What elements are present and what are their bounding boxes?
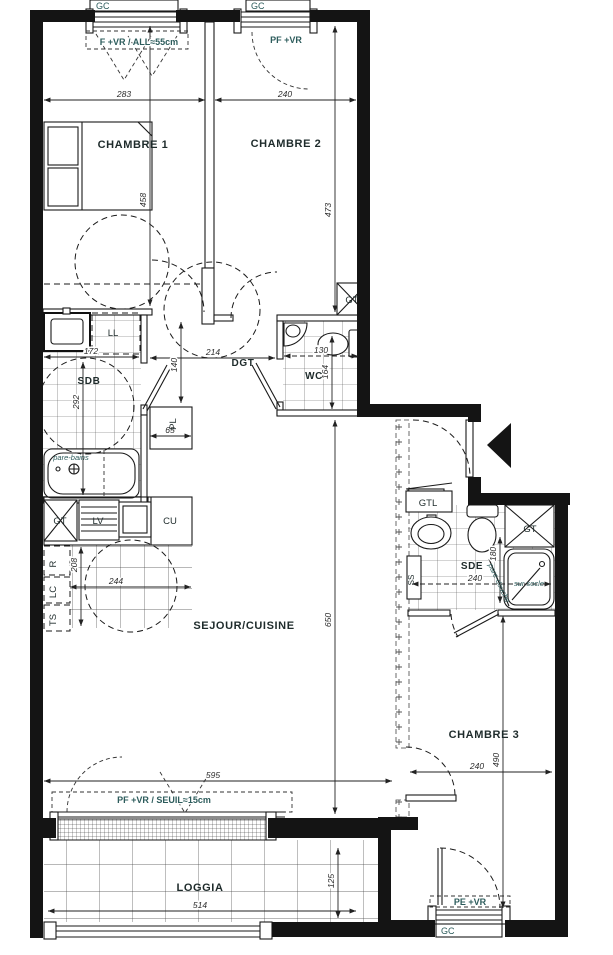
label-bay-window: PF +VR / SEUIL≈15cm: [117, 795, 211, 805]
label-ts: TS: [48, 614, 59, 626]
loggia-balustrade: [44, 922, 272, 939]
dim-dgt-height: 140: [169, 358, 179, 372]
dim-chambre2-width: 240: [277, 89, 292, 99]
dim-chambre3-width: 240: [469, 761, 484, 771]
label-chambre3: CHAMBRE 3: [449, 729, 520, 741]
dim-sdb-width: 172: [84, 346, 98, 356]
dim-kitchen-height: 208: [69, 558, 79, 573]
floor-plan-drawing: 283 240 458 473 172 292 214 140 130 164 …: [0, 0, 613, 955]
hatched-partition: [396, 420, 409, 817]
dim-chambre1-height: 458: [138, 193, 148, 207]
label-window2: PF +VR: [270, 35, 302, 45]
label-gt-sde: GT: [523, 524, 536, 535]
window-chambre3: [428, 848, 510, 937]
entrance-arrow: [487, 423, 511, 468]
label-wc: WC: [305, 371, 323, 382]
door-leaf-wc: [252, 363, 280, 409]
label-sur-socle: sur socle: [514, 579, 544, 588]
label-ll: LL: [108, 328, 119, 339]
dim-loggia-width: 514: [193, 900, 207, 910]
label-lv: LV: [93, 516, 105, 527]
kitchen-sink: [119, 502, 151, 537]
entrance-door-swing: [413, 420, 470, 477]
kitchen-floor: [70, 545, 192, 628]
dim-chambre2-height: 473: [323, 203, 333, 217]
door-swing-chambre3: [406, 747, 455, 796]
sdb-washbasin: [44, 308, 90, 351]
label-ss: SS: [407, 575, 416, 586]
label-sdb: SDB: [78, 376, 101, 387]
label-r: R: [48, 560, 59, 567]
dim-wc-width: 130: [314, 345, 328, 355]
label-gc-2: GC: [251, 1, 265, 11]
label-pare-bains: pare-bains: [52, 453, 89, 462]
sde-washbasin: [411, 517, 451, 549]
label-lc: LC: [48, 586, 59, 598]
floor-plan: 283 240 458 473 172 292 214 140 130 164 …: [0, 0, 613, 955]
door-swing-chambre2: [231, 272, 277, 318]
dim-sejour-width: 595: [206, 770, 220, 780]
dim-sde-height: 180: [488, 547, 498, 561]
dim-chambre3-height: 490: [491, 753, 501, 767]
label-dgt: DGT: [232, 358, 255, 369]
label-gc-1: GC: [96, 1, 110, 11]
sde-toilet-bowl: [468, 518, 496, 552]
dim-chambre1-width: 283: [116, 89, 131, 99]
dim-sejour-height: 650: [323, 613, 333, 627]
dim-loggia-height: 125: [326, 874, 336, 888]
label-gt-wc: GT: [345, 295, 358, 306]
door-swing-sde-chambre3: [451, 614, 458, 637]
door-leaf-sde-chambre3: [454, 610, 499, 637]
fridge-slot: [44, 546, 70, 575]
label-chambre1: CHAMBRE 1: [98, 139, 169, 151]
label-gtl: GTL: [419, 498, 437, 509]
sde-toilet-cistern: [467, 505, 498, 517]
label-cu: CU: [163, 516, 177, 527]
label-chambre2: CHAMBRE 2: [251, 138, 322, 150]
door-swing-chambre1: [152, 260, 204, 312]
label-loggia: LOGGIA: [177, 882, 224, 894]
label-sde: SDE: [461, 561, 483, 572]
label-gt-kitchen: GT: [53, 516, 66, 527]
dim-dgt-width: 214: [205, 347, 220, 357]
label-pl: PL: [168, 418, 179, 430]
turning-circle-chambre1: [75, 215, 169, 309]
label-gc-3: GC: [441, 926, 455, 936]
label-window3: PE +VR: [454, 897, 487, 907]
dim-sde-width: 240: [467, 573, 482, 583]
dim-kitchen-width: 244: [108, 576, 123, 586]
label-sejour: SEJOUR/CUISINE: [193, 620, 294, 632]
bed: [44, 122, 152, 210]
label-window1: F +VR / ALL≈55cm: [100, 37, 178, 47]
door-leaf-sdb: [143, 365, 171, 411]
door-leaf-chambre3: [406, 795, 456, 801]
dim-sdb-height: 292: [71, 395, 81, 410]
